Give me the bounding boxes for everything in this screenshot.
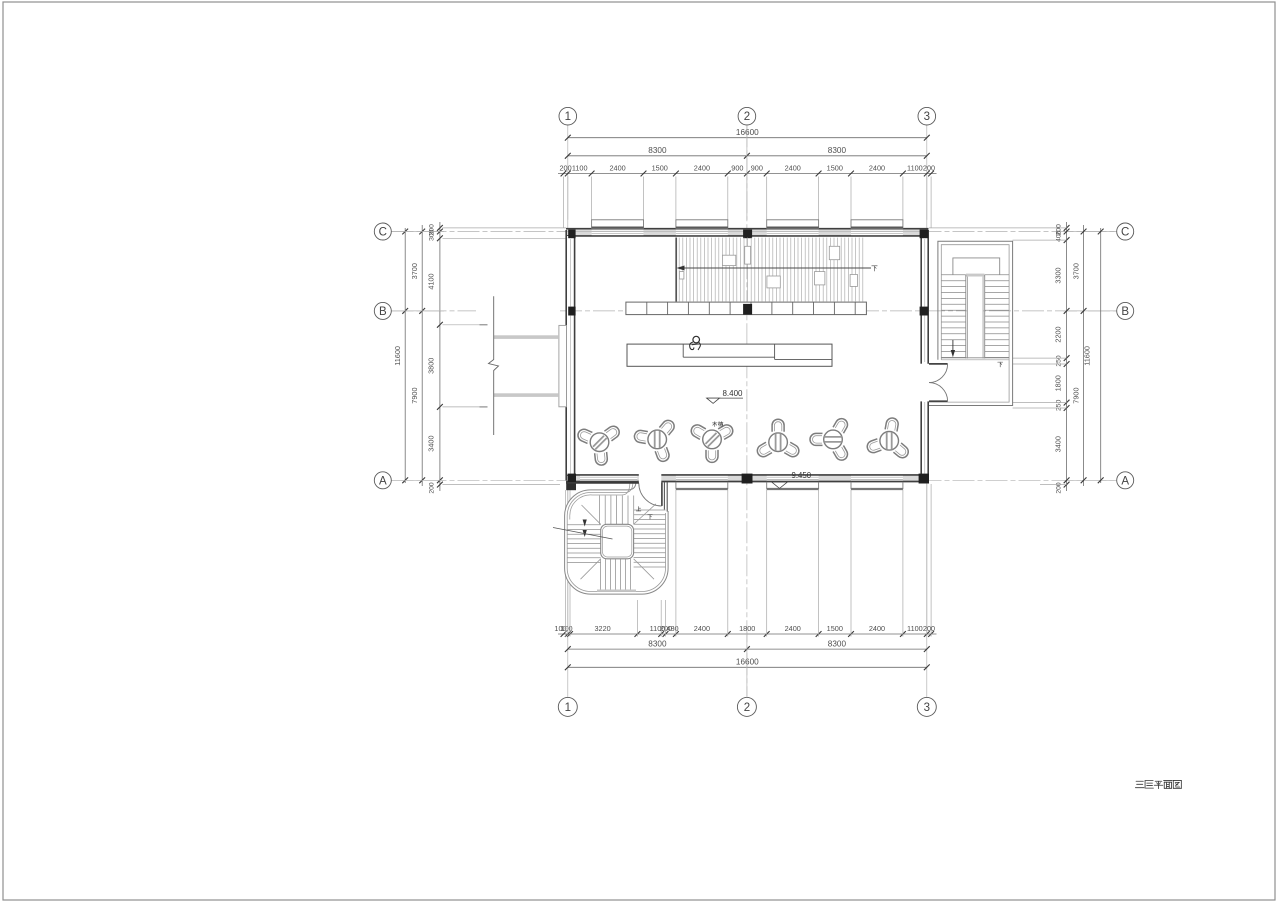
svg-text:200: 200 [923,624,935,633]
svg-text:480: 480 [666,624,678,633]
svg-text:7900: 7900 [410,387,419,403]
svg-text:200: 200 [428,482,435,494]
svg-text:1100: 1100 [907,624,923,633]
svg-text:A: A [1121,475,1129,487]
svg-text:8300: 8300 [648,639,667,648]
svg-text:3400: 3400 [1053,436,1062,452]
svg-text:4100: 4100 [426,273,435,289]
svg-text:A: A [379,475,387,487]
svg-text:200: 200 [923,164,935,173]
svg-text:16600: 16600 [736,128,759,137]
svg-text:1800: 1800 [1053,375,1062,391]
svg-text:100: 100 [560,624,572,633]
svg-text:C: C [379,227,387,239]
svg-text:3400: 3400 [426,435,435,451]
svg-text:8300: 8300 [648,146,667,155]
svg-text:8300: 8300 [828,639,847,648]
svg-text:2400: 2400 [785,164,801,173]
svg-text:3220: 3220 [594,624,610,633]
svg-text:1: 1 [565,111,571,123]
svg-text:2: 2 [744,111,750,123]
svg-text:3300: 3300 [1053,267,1062,283]
svg-text:C: C [1121,227,1129,239]
svg-text:2: 2 [744,702,750,714]
svg-text:11600: 11600 [393,346,402,366]
svg-text:B: B [1121,306,1129,318]
svg-text:1: 1 [565,702,571,714]
svg-text:11600: 11600 [1083,346,1092,366]
svg-text:200: 200 [560,164,572,173]
svg-text:900: 900 [731,164,743,173]
svg-text:7900: 7900 [1071,387,1080,403]
svg-text:9.450: 9.450 [792,471,812,480]
svg-text:8.400: 8.400 [722,389,743,398]
svg-text:3700: 3700 [1071,263,1080,279]
svg-text:2400: 2400 [609,164,625,173]
svg-text:2200: 2200 [1053,326,1062,342]
svg-text:B: B [379,306,387,318]
svg-text:1500: 1500 [827,624,843,633]
svg-text:1100: 1100 [572,164,588,173]
svg-text:16600: 16600 [736,658,759,667]
svg-text:2400: 2400 [694,164,710,173]
svg-text:2400: 2400 [869,164,885,173]
svg-text:2400: 2400 [869,624,885,633]
svg-text:250: 250 [1055,355,1062,367]
svg-text:300: 300 [428,229,435,241]
svg-text:3: 3 [924,111,930,123]
svg-text:250: 250 [1055,399,1062,411]
svg-text:1800: 1800 [739,624,755,633]
svg-text:3700: 3700 [410,263,419,279]
svg-text:2400: 2400 [694,624,710,633]
svg-text:1500: 1500 [652,164,668,173]
svg-text:900: 900 [751,164,763,173]
svg-text:2400: 2400 [785,624,801,633]
svg-text:8300: 8300 [828,146,847,155]
svg-text:3800: 3800 [426,358,435,374]
svg-text:1100: 1100 [907,164,923,173]
svg-text:3: 3 [924,702,930,714]
svg-text:1500: 1500 [827,164,843,173]
svg-text:200: 200 [1055,482,1062,494]
